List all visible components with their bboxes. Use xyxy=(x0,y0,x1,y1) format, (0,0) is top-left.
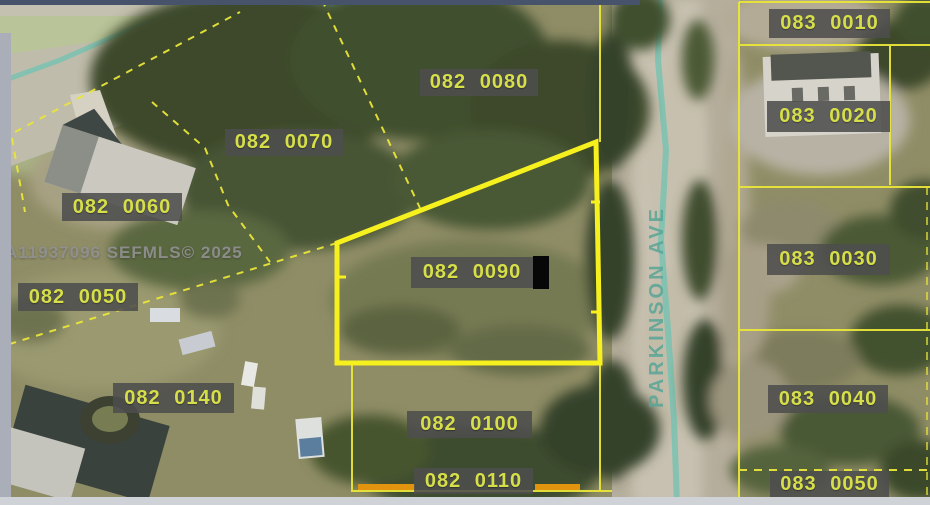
parcel-label: 083 0010 xyxy=(769,9,890,38)
parcel-label: 083 0020 xyxy=(767,101,890,132)
street-name-label: PARKINSON AVE xyxy=(646,158,672,408)
viewer-edge-strip-top xyxy=(0,0,640,5)
viewer-edge-strip-bottom xyxy=(0,497,930,505)
parcel-label: 082 0080 xyxy=(420,69,538,96)
aerial-parcel-map[interactable]: A11937096 SEFMLS© 2025 PARKINSON AVE 082… xyxy=(0,0,930,505)
parcel-label: 082 0050 xyxy=(18,283,138,311)
parcel-label-highlighted: 082 0090 xyxy=(411,257,533,288)
parcel-label: 082 0110 xyxy=(414,468,533,494)
parcel-label: 083 0050 xyxy=(770,471,889,498)
map-cursor-marker xyxy=(533,256,549,289)
parcel-label: 083 0030 xyxy=(767,244,890,275)
parcel-label: 082 0060 xyxy=(62,193,182,221)
parcel-label: 083 0040 xyxy=(768,385,888,413)
parcel-label: 082 0140 xyxy=(113,383,234,413)
parcel-label: 082 0070 xyxy=(225,129,343,156)
viewer-edge-strip-left xyxy=(0,33,11,505)
mls-watermark: A11937096 SEFMLS© 2025 xyxy=(5,243,243,263)
parcel-label: 082 0100 xyxy=(407,411,532,438)
